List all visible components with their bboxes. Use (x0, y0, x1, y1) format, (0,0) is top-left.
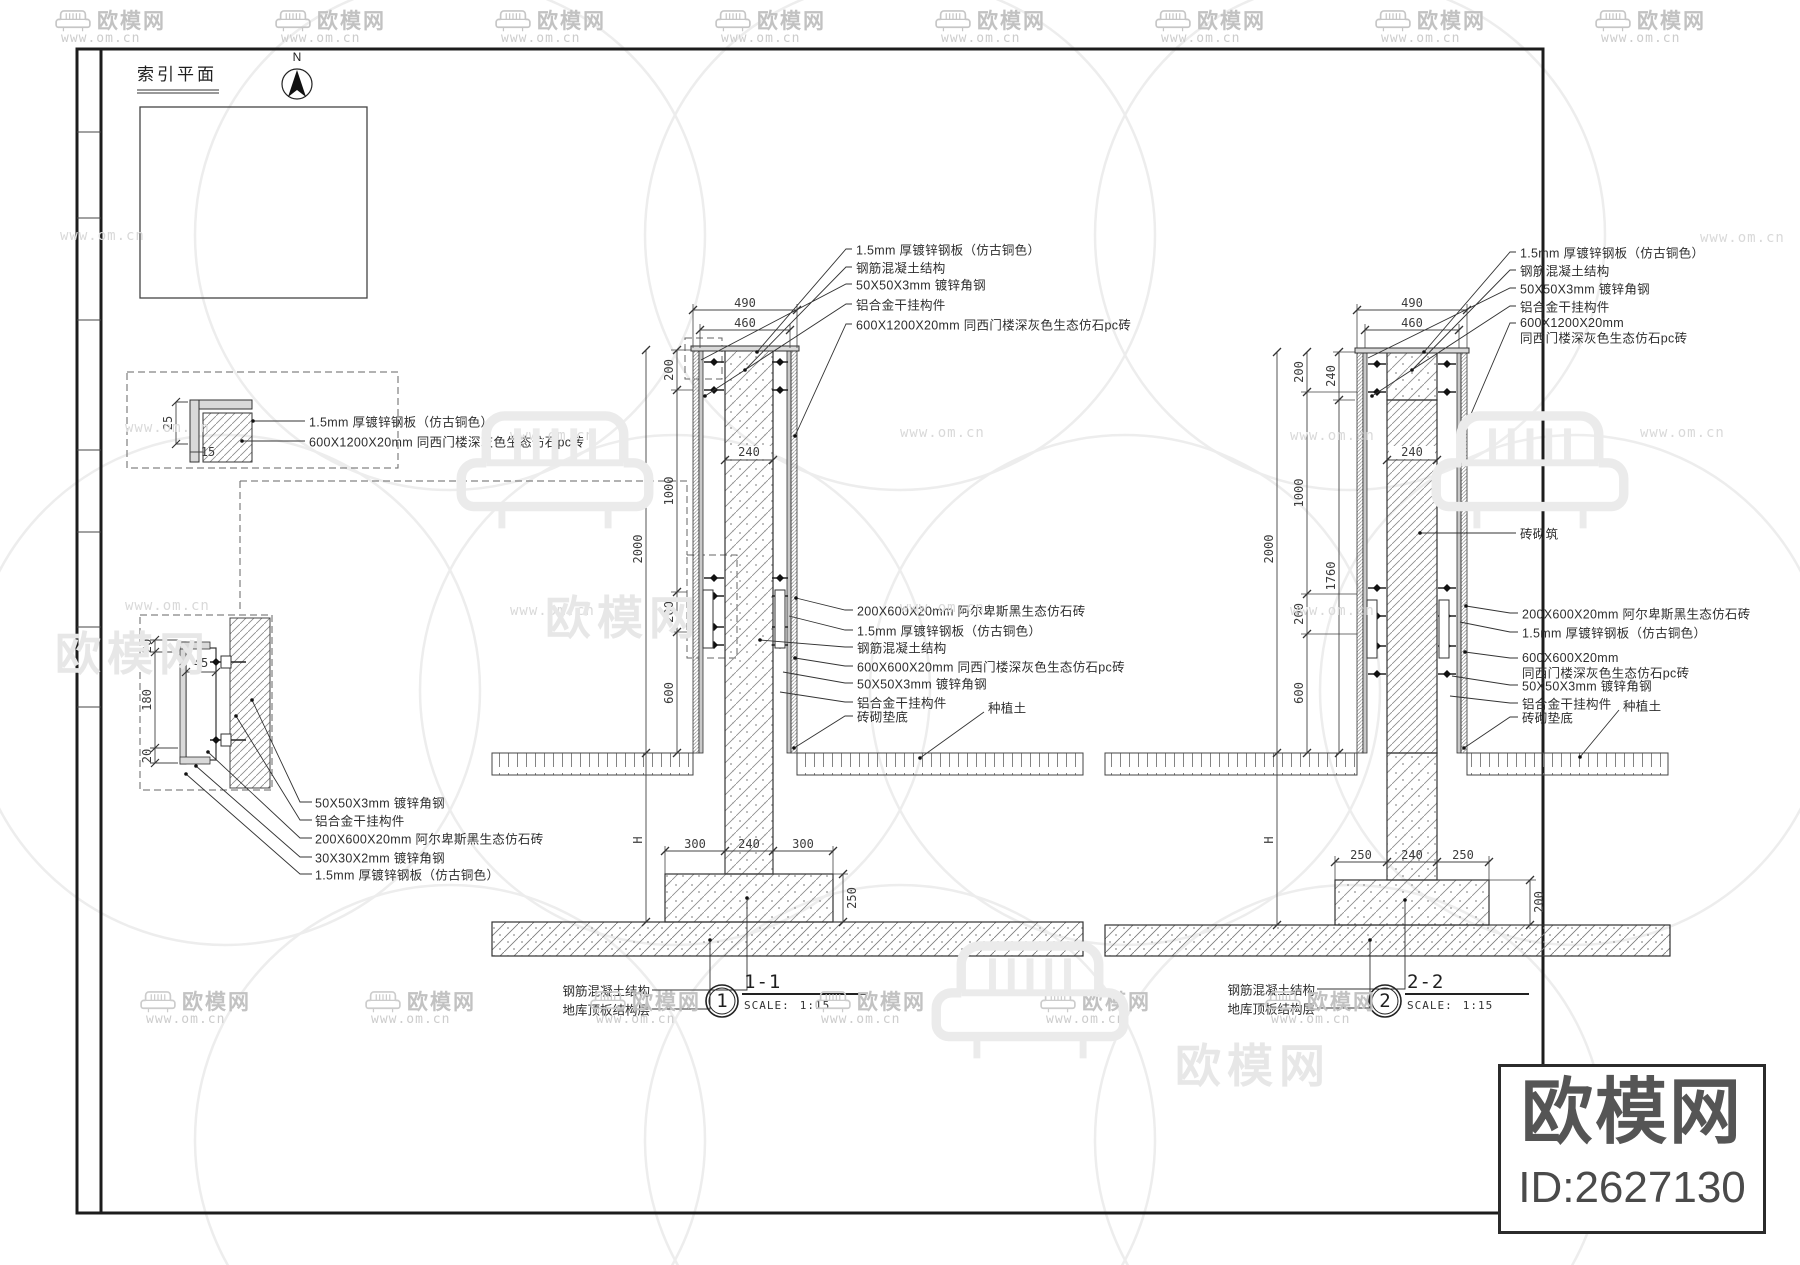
annotation: 砖砌筑 (1520, 524, 1558, 543)
dim-label: 240 (738, 445, 760, 459)
dim-label: 1760 (1324, 562, 1338, 591)
annotation: 种植土 (1623, 696, 1661, 715)
dim-label: 300 (684, 837, 706, 851)
dim-label: 180 (140, 689, 154, 711)
dim-label: 490 (734, 296, 756, 310)
annotation: 钢筋混凝土结构 (857, 638, 947, 657)
dim-label: H (631, 836, 645, 843)
scale-label: SCALE: (744, 999, 790, 1012)
annotation: 200X600X20mm 阿尔卑斯黑生态仿石砖 (1522, 604, 1751, 623)
annotation: 砖砌垫底 (857, 707, 908, 726)
dim-label: 45 (194, 656, 208, 670)
dim-label: 200 (1532, 891, 1546, 913)
dim-label: 600 (1292, 682, 1306, 704)
dim-label: 250 (845, 887, 859, 909)
section-title: 2-2 (1407, 971, 1444, 993)
dim-label: 2000 (631, 535, 645, 564)
dim-label: 200 (1292, 361, 1306, 383)
cad-sheet: 索引平面 N 25 15 1.5mm 厚镀锌钢板（仿古铜色） 600X1200X… (0, 0, 1800, 1265)
dim-label: 250 (1350, 848, 1372, 862)
dim-label: 200 (1292, 603, 1306, 625)
annotation: 1.5mm 厚镀锌钢板（仿古铜色） (309, 412, 493, 431)
annotation: 600X1200X20mm 同西门楼深灰色生态仿石pc砖 (856, 315, 1131, 334)
watermark-brand: 欧模网 (1501, 1067, 1763, 1159)
index-plan (137, 69, 367, 298)
dim-label: 1000 (662, 477, 676, 506)
dim-label: 20 (140, 749, 154, 763)
annotation: 1.5mm 厚镀锌钢板（仿古铜色） (1520, 243, 1704, 262)
dim-label: 490 (1401, 296, 1423, 310)
dim-label: 240 (1401, 445, 1423, 459)
annotation: 1.5mm 厚镀锌钢板（仿古铜色） (315, 865, 499, 884)
section-scale: SCALE:1:15 (1407, 999, 1503, 1012)
annotation: 1.5mm 厚镀锌钢板（仿古铜色） (1522, 623, 1706, 642)
annotation: 钢筋混凝土结构 (470, 981, 650, 1000)
annotation: 50X50X3mm 镀锌角钢 (1522, 676, 1652, 695)
annotation: 种植土 (988, 698, 1026, 717)
annotation: 50X50X3mm 镀锌角钢 (856, 275, 986, 294)
dim-label: 460 (1401, 316, 1423, 330)
annotation: 200X600X20mm 阿尔卑斯黑生态仿石砖 (315, 829, 544, 848)
dim-label: 20 (140, 639, 154, 653)
sheet-frame (77, 49, 1543, 1213)
dim-label: 250 (1452, 848, 1474, 862)
annotation: 50X50X3mm 镀锌角钢 (1520, 279, 1650, 298)
section-callout: 2 (1379, 990, 1390, 1012)
scale-value: 1:15 (1463, 999, 1494, 1012)
section-scale: SCALE:1:15 (744, 999, 840, 1012)
watermark-id-box: 欧模网 ID:2627130 (1498, 1064, 1766, 1234)
dim-label: 200 (662, 601, 676, 623)
annotation: 600X1200X20mm 同西门楼深灰色生态仿石pc砖 (309, 432, 584, 451)
annotation: 地库顶板结构层 (470, 1000, 650, 1019)
section-title: 1-1 (744, 971, 781, 993)
dim-label: 240 (738, 837, 760, 851)
annotation: 铝合金干挂构件 (856, 295, 946, 314)
dim-label: 15 (201, 445, 215, 459)
annotation: 200X600X20mm 阿尔卑斯黑生态仿石砖 (857, 601, 1086, 620)
dim-label: 2000 (1262, 535, 1276, 564)
dim-label: 25 (161, 416, 175, 430)
annotation: 铝合金干挂构件 (315, 811, 405, 830)
north-arrow-icon (288, 70, 306, 97)
detail-2 (140, 615, 312, 874)
annotation: 地库顶板结构层 (1135, 999, 1315, 1018)
dim-label: 1000 (1292, 479, 1306, 508)
north-label: N (293, 50, 302, 64)
dim-label: 240 (1324, 365, 1338, 387)
scale-label: SCALE: (1407, 999, 1453, 1012)
watermark-id: ID:2627130 (1501, 1159, 1763, 1217)
annotation: 50X50X3mm 镀锌角钢 (315, 793, 445, 812)
scale-value: 1:15 (800, 999, 831, 1012)
section-callout: 1 (716, 990, 727, 1012)
page-title: 索引平面 (137, 60, 217, 85)
annotation: 1.5mm 厚镀锌钢板（仿古铜色） (856, 240, 1040, 259)
annotation: 同西门楼深灰色生态仿石pc砖 (1520, 328, 1687, 347)
dim-label: 200 (662, 359, 676, 381)
annotation: 砖砌垫底 (1522, 708, 1573, 727)
annotation: 铝合金干挂构件 (1520, 297, 1610, 316)
annotation: 50X50X3mm 镀锌角钢 (857, 674, 987, 693)
annotation: 钢筋混凝土结构 (1135, 980, 1315, 999)
annotation: 钢筋混凝土结构 (1520, 261, 1610, 280)
dim-label: 460 (734, 316, 756, 330)
dim-label: 240 (1401, 848, 1423, 862)
dim-label: 600 (662, 682, 676, 704)
dim-label: 300 (792, 837, 814, 851)
dim-label: H (1262, 836, 1276, 843)
